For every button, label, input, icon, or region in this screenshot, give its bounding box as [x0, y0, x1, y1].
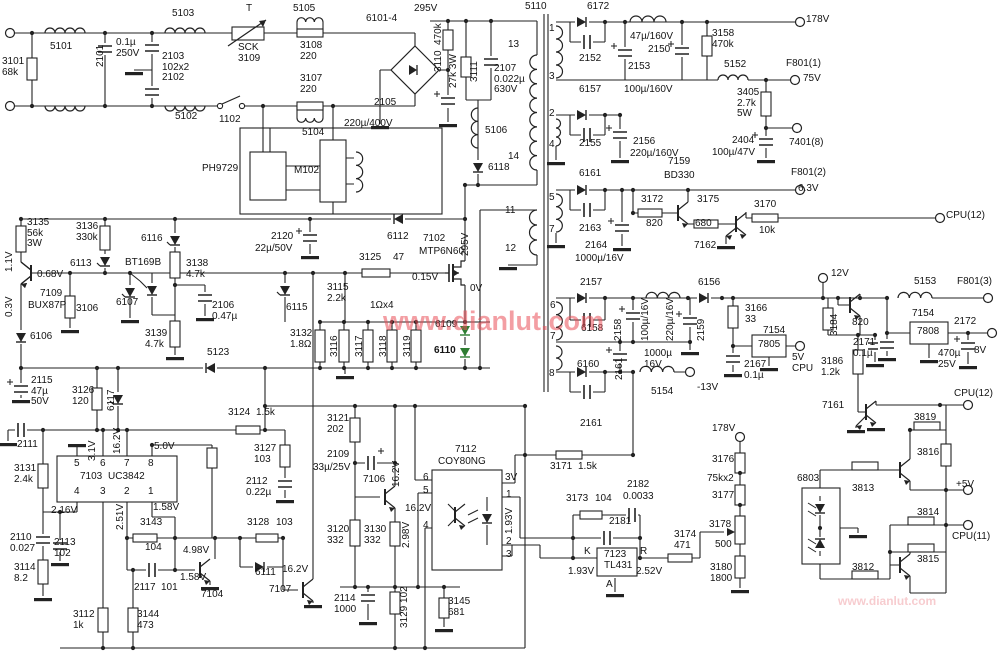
component-label: 220µ/400V	[344, 119, 393, 130]
component-label: 12	[505, 244, 516, 255]
component-label: F801(1)	[786, 59, 821, 70]
component-label: 6110	[434, 346, 456, 357]
component-label: 2111	[17, 440, 38, 451]
component-label: 3110 470k	[434, 23, 445, 72]
component-label: 820	[852, 318, 869, 329]
watermark: www.dianlut.com	[383, 306, 604, 337]
component-label: 3176	[712, 455, 734, 466]
component-label: 2167 0.1µ	[744, 360, 766, 381]
component-label: 3178	[709, 520, 731, 531]
component-label: 6	[100, 459, 106, 470]
component-label: 0.68V	[37, 270, 63, 281]
component-label: 6107	[116, 298, 138, 309]
component-label: 5106	[485, 126, 507, 137]
component-label: 5	[74, 459, 80, 470]
component-label: 8	[549, 369, 555, 380]
component-label: CPU(12)	[954, 389, 993, 400]
component-label: 3812	[852, 563, 874, 574]
component-label: 3816	[917, 448, 939, 459]
component-label: 2	[124, 487, 130, 498]
component-label: 3129 102	[400, 586, 411, 628]
component-label: 3175	[697, 195, 719, 206]
component-label: 470µ 25V	[938, 349, 960, 370]
component-label: 2404	[732, 136, 754, 147]
component-label: 7	[124, 459, 130, 470]
component-label: CPU(12)	[946, 211, 985, 222]
component-label: BD330	[664, 171, 695, 182]
component-label: 5123	[207, 348, 229, 359]
component-label: 7123 TL431	[604, 550, 632, 571]
component-label: 5152	[724, 60, 746, 71]
component-label: 6106	[30, 332, 52, 343]
component-label: 47µ/160V	[630, 32, 673, 43]
component-label: 2161	[580, 419, 602, 430]
component-label: 1	[148, 487, 154, 498]
component-label: 2101	[96, 45, 107, 67]
component-label: 3	[506, 550, 512, 561]
component-label: 3101 68k	[2, 57, 24, 78]
component-label: 3112 1k	[73, 610, 95, 631]
component-label: 0.15V	[412, 273, 438, 284]
component-label: F801(2)	[791, 168, 826, 179]
component-label: 6116	[141, 234, 163, 245]
component-label: 3108 220	[300, 41, 322, 62]
component-label: 103	[276, 518, 293, 529]
component-label: 6157	[579, 85, 601, 96]
component-label: 12V	[831, 269, 849, 280]
component-label: 10k	[759, 226, 775, 237]
component-label: 3114 8.2	[14, 563, 36, 584]
component-label: 3127 103	[254, 444, 276, 465]
component-label: 7103	[80, 472, 102, 483]
component-label: SCK 3109	[238, 43, 260, 64]
component-label: R	[640, 547, 647, 558]
component-label: 3128	[247, 518, 269, 529]
component-label: 6.3V	[798, 184, 819, 195]
component-label: 4.98V	[183, 546, 209, 557]
component-label: 3116	[330, 335, 341, 357]
component-label: 500	[715, 540, 732, 551]
component-label: 2	[549, 109, 555, 120]
component-label: 7106	[363, 475, 385, 486]
component-label: 1.1V	[5, 251, 16, 272]
component-label: 3119	[403, 335, 414, 357]
component-label: 7154	[763, 326, 785, 337]
component-label: 3143	[140, 518, 162, 529]
component-label: 3138 4.7k	[186, 259, 208, 280]
component-label: 104	[145, 543, 162, 554]
component-label: 3174 471	[674, 530, 696, 551]
component-label: CPU(11)	[952, 532, 990, 543]
component-label: 2103 102x2 2102	[162, 52, 189, 84]
component-label: 3144 473	[137, 610, 159, 631]
component-label: 5.0V	[154, 442, 175, 453]
component-label: 3117	[355, 335, 366, 357]
component-label: 4	[74, 487, 80, 498]
component-label: 2113 102	[54, 538, 76, 559]
component-label: 1102	[219, 115, 241, 126]
component-label: 6113	[70, 259, 92, 270]
component-label: 3126 120	[72, 386, 94, 407]
component-label: 2163	[579, 224, 601, 235]
component-label: 4	[549, 140, 555, 151]
component-label: 6112	[387, 232, 409, 243]
component-label: 3170	[754, 200, 776, 211]
component-label: 5101	[50, 42, 72, 53]
component-label: 8V	[974, 346, 986, 357]
component-label: 16.2V	[113, 428, 124, 454]
component-label: 2112 0.22µ	[246, 477, 271, 498]
component-label: 820	[646, 219, 663, 230]
component-label: 1.58V	[153, 503, 179, 514]
component-label: 16.2V	[405, 504, 431, 515]
component-label: 3135 56k 3W	[27, 218, 49, 250]
component-label: 2.16V	[51, 506, 77, 517]
component-label: 3118	[379, 335, 390, 357]
component-label: 8	[148, 459, 154, 470]
component-label: 16.2V	[282, 565, 308, 576]
component-label: 3158 470k	[712, 29, 734, 50]
component-label: 5154	[651, 387, 673, 398]
component-label: 3130 332	[364, 525, 386, 546]
component-label: 2157	[580, 278, 602, 289]
component-label: 295V	[461, 233, 472, 256]
component-label: 2172	[954, 317, 976, 328]
component-label: 100µ/160V	[624, 85, 673, 96]
component-label: 2.98V	[402, 522, 413, 548]
component-label: -13V	[697, 383, 718, 394]
component-label: 3	[549, 72, 555, 83]
component-label: 6115	[286, 303, 308, 314]
component-label: A	[606, 580, 613, 591]
component-label: 2107 0.022µ 630V	[494, 64, 525, 96]
component-label: 3120 332	[327, 525, 349, 546]
component-label: 104	[595, 494, 612, 505]
component-label: 7109	[40, 289, 62, 300]
component-label: 2181	[609, 517, 631, 528]
component-label: 2.52V	[636, 567, 662, 578]
component-label: 3V	[505, 473, 517, 484]
component-label: 3131 2.4k	[14, 464, 36, 485]
component-label: 3121 202	[327, 414, 349, 435]
component-label: 3172	[641, 195, 663, 206]
component-label: BUX87P	[28, 301, 66, 312]
component-label: 680	[695, 219, 712, 230]
component-label: 75kx2	[707, 474, 734, 485]
component-label: 7159	[668, 157, 690, 168]
component-label: 2164	[585, 241, 607, 252]
component-label: 3125	[359, 253, 381, 264]
component-label: MTP6N60	[419, 247, 464, 258]
component-label: 1000µ/16V	[575, 254, 624, 265]
component-label: 3813	[852, 484, 874, 495]
component-label: K	[584, 547, 591, 558]
component-label: 2150	[648, 45, 670, 56]
component-label: 3171	[550, 462, 572, 473]
component-label: 33µ/25V	[313, 463, 350, 474]
component-label: 2153	[628, 62, 650, 73]
component-label: 14	[508, 152, 519, 163]
component-label: COY80NG	[438, 457, 486, 468]
component-label: 5	[423, 486, 429, 497]
component-label: 22µ/50V	[255, 244, 292, 255]
component-label: 2171 0.1µ	[853, 338, 875, 359]
component-label: 3136 330k	[76, 222, 98, 243]
component-label: 295V	[414, 4, 437, 15]
component-label: 1.5k	[578, 462, 597, 473]
component-label: 7401(8)	[789, 138, 823, 149]
component-label: 3.1V	[88, 440, 99, 461]
component-label: 2.51V	[116, 504, 127, 530]
component-label: 7107	[269, 585, 291, 596]
component-label: 2159	[697, 319, 708, 341]
component-label: 5104	[302, 128, 324, 139]
component-label: BT169B	[125, 258, 161, 269]
component-label: 3405 2.7k 5W	[737, 88, 759, 120]
component-label: 11	[505, 206, 515, 217]
component-label: 100µ/16V	[641, 298, 652, 341]
component-label: 2161	[615, 358, 626, 380]
component-label: 3177	[712, 491, 734, 502]
component-label: 5102	[175, 112, 197, 123]
component-label: 2109	[327, 450, 349, 461]
component-label: 5153	[914, 277, 936, 288]
component-label: 2114 1000	[334, 594, 356, 615]
component-label: 7102	[423, 234, 445, 245]
component-label: 1.93V	[505, 508, 516, 534]
component-label: 3132 1.8Ω	[290, 329, 312, 350]
component-label: 7104	[201, 590, 223, 601]
component-label: 6161	[579, 169, 601, 180]
component-label: 47	[393, 253, 404, 264]
component-label: 7	[549, 225, 555, 236]
component-label: 3106	[76, 304, 98, 315]
component-label: 3145 681	[448, 597, 470, 618]
component-label: 0.1µ 250V	[116, 38, 139, 59]
component-label: 7112	[455, 445, 477, 456]
component-label: 3111	[470, 61, 481, 82]
component-label: 2110 0.027	[10, 533, 35, 554]
component-label: 1.5k	[256, 408, 275, 419]
component-label: 178V	[806, 15, 829, 26]
component-label: 6	[423, 473, 429, 484]
component-label: 3819	[914, 413, 936, 424]
component-label: 6172	[587, 2, 609, 13]
component-label: 2155	[579, 139, 601, 150]
component-label: 3186 1.2k	[821, 357, 843, 378]
component-label: 16.2V	[392, 461, 403, 487]
component-label: T	[246, 4, 252, 15]
component-label: 3184	[830, 314, 841, 336]
component-label: 3815	[917, 555, 939, 566]
component-label: 2	[506, 537, 512, 548]
component-label: 6160	[577, 360, 599, 371]
component-label: 2156	[633, 137, 655, 148]
schematic-canvas: 3101 68k510121010.1µ 250V2103 102x2 2102…	[0, 0, 1000, 661]
component-label: 5	[549, 193, 555, 204]
component-label: 13	[508, 40, 519, 51]
component-label: 4	[423, 521, 429, 532]
component-label: 3124	[228, 408, 250, 419]
component-label: F801(3)	[957, 277, 992, 288]
component-label: 6156	[698, 278, 720, 289]
component-label: UC3842	[108, 472, 145, 483]
component-label: 6803	[797, 474, 819, 485]
component-label: 6101-4	[366, 14, 397, 25]
component-label: 3173	[566, 494, 588, 505]
component-label: 6118	[488, 163, 510, 174]
component-label: 0V	[470, 284, 482, 295]
component-label: 3107 220	[300, 74, 322, 95]
component-label: 2152	[579, 54, 601, 65]
component-label: 0.3V	[5, 296, 16, 317]
component-label: 5103	[172, 9, 194, 20]
watermark: www.dianlut.com	[838, 594, 936, 608]
component-label: 178V	[712, 424, 735, 435]
component-label: 3115 2.2k	[327, 283, 349, 304]
component-label: 7161	[822, 401, 844, 412]
component-label: 1	[549, 24, 555, 35]
component-label: 1000µ 16V	[644, 349, 672, 370]
component-label: 3139 4.7k	[145, 329, 167, 350]
component-label: 1	[506, 490, 512, 501]
component-label: 0.0033	[623, 492, 654, 503]
component-label: 2182	[627, 480, 649, 491]
component-label: 7162	[694, 241, 716, 252]
component-label: PH9729	[202, 164, 238, 175]
component-label: 6117	[107, 389, 118, 411]
component-label: 3180 1800	[710, 563, 732, 584]
component-label: 5105	[293, 4, 315, 15]
component-label: 3814	[917, 508, 939, 519]
component-label: 100µ/47V	[712, 148, 755, 159]
component-label: 1.58V	[180, 573, 206, 584]
component-label: 101	[161, 583, 178, 594]
component-label: 2120	[271, 232, 293, 243]
component-label: M102	[294, 166, 319, 177]
component-label: +5V	[956, 480, 974, 491]
component-label: 7154	[912, 309, 934, 320]
component-label: 2158	[614, 319, 625, 341]
component-label: 7808	[917, 327, 939, 338]
component-label: 220µ/16V	[666, 298, 677, 341]
component-label: 6111	[255, 568, 276, 579]
component-label: 2115 47µ 50V	[31, 376, 53, 408]
component-label: 5110	[525, 2, 547, 13]
component-label: 2117	[134, 583, 156, 594]
component-label: 27k 3W	[449, 54, 460, 88]
component-label: 2105	[374, 98, 396, 109]
component-label: 5V CPU	[792, 353, 813, 374]
component-label: 2106 0.47µ	[212, 301, 237, 322]
component-label: 75V	[803, 74, 821, 85]
component-label: 3	[100, 487, 106, 498]
component-label: 7805	[758, 340, 780, 351]
component-label: 3166 33	[745, 304, 767, 325]
component-label: 1.93V	[568, 567, 594, 578]
